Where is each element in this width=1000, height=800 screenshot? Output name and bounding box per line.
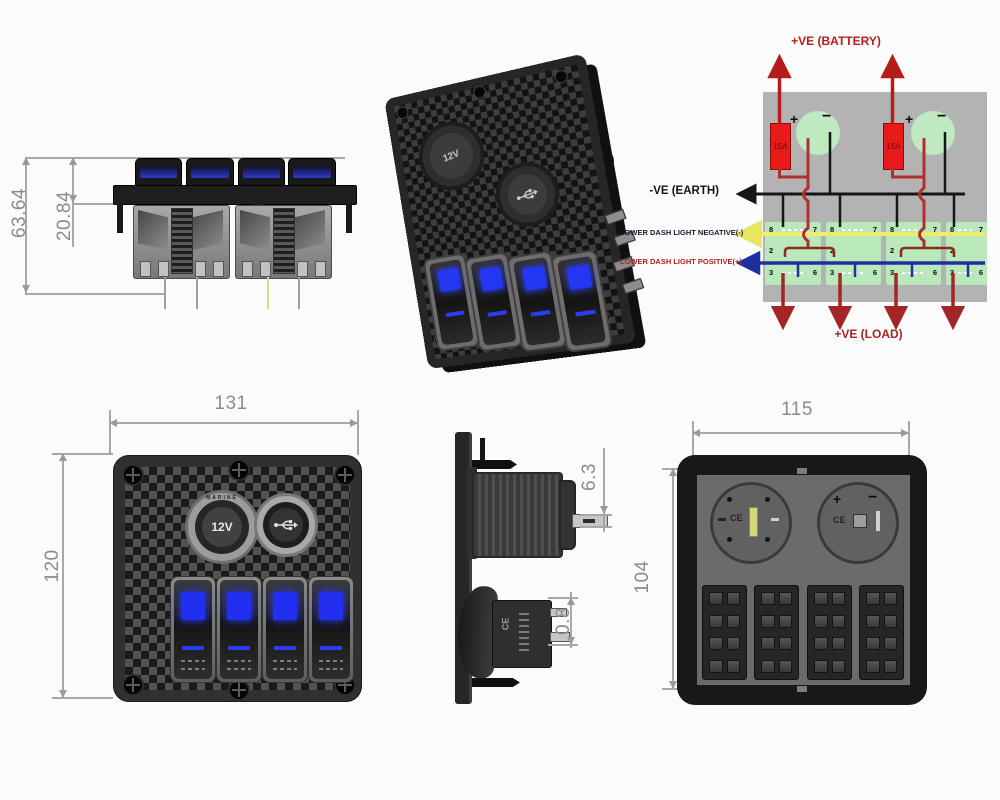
rocker-dash xyxy=(575,310,596,317)
terminal-bar xyxy=(876,511,880,531)
power-socket-face: 12V xyxy=(427,129,477,182)
dim-arrow xyxy=(69,157,77,165)
terminal-3-label: 3 xyxy=(830,269,834,277)
terminal-2-label: 2 xyxy=(830,247,834,255)
rocker-dash xyxy=(445,310,464,317)
switch-body-side xyxy=(235,205,332,279)
extension-line xyxy=(25,293,165,295)
technical-drawing-sheet: 63.64 20.84 xyxy=(0,0,1000,800)
extension-line xyxy=(580,526,612,528)
terminal-slot xyxy=(761,660,775,673)
mount-pin xyxy=(472,678,520,687)
terminal-slot xyxy=(761,637,775,650)
rocker-switch-front xyxy=(262,576,308,683)
terminal-slot xyxy=(779,615,793,628)
screw-icon xyxy=(122,464,144,486)
terminal-slot xyxy=(884,615,898,628)
terminal-slot xyxy=(832,660,846,673)
ce-mark-label: CE xyxy=(500,618,510,631)
notch-mark xyxy=(771,518,779,521)
terminal-slot xyxy=(832,615,846,628)
terminal-tab xyxy=(213,261,224,277)
terminal-slot xyxy=(709,660,723,673)
rocker-face xyxy=(557,256,606,346)
terminal-slot xyxy=(727,660,741,673)
dimension-line xyxy=(692,432,908,434)
terminal-dots xyxy=(958,272,972,274)
rocker-switch-front xyxy=(308,576,354,683)
rocker-marks xyxy=(319,660,343,662)
switch-rear xyxy=(702,585,747,680)
terminal-2-label: 2 xyxy=(769,247,773,255)
rocker-dash xyxy=(228,646,250,650)
plus-terminal-label: + xyxy=(790,112,798,126)
terminal-slot xyxy=(779,592,793,605)
mount-clip xyxy=(480,438,485,462)
dash-negative-label: LOWER DASH LIGHT NEGATIVE(-) xyxy=(620,228,740,237)
minus-terminal-label: − xyxy=(937,109,946,125)
mount-pin xyxy=(472,460,517,469)
terminal-8-label: 8 xyxy=(890,226,894,234)
ce-mark-label: CE xyxy=(833,515,846,525)
switch-rear xyxy=(807,585,852,680)
terminal-tab xyxy=(158,261,169,277)
terminal-slot xyxy=(727,637,741,650)
terminal-8-label: 8 xyxy=(769,226,773,234)
usb-socket-3d xyxy=(491,157,564,232)
terminal-tab xyxy=(140,261,151,277)
rocker-marks xyxy=(181,668,205,670)
dim-arrow xyxy=(59,690,67,698)
usb-socket-bezel xyxy=(263,502,309,548)
socket-voltage-label: 12V xyxy=(442,148,461,164)
terminal-7-label: 7 xyxy=(813,226,817,234)
power-socket-face: 12V xyxy=(202,507,242,547)
wire-pin xyxy=(164,277,166,309)
rocker-dash xyxy=(487,310,507,317)
terminal-6-label: 6 xyxy=(979,269,983,277)
wiring-socket-circle xyxy=(911,111,955,155)
earth-label: -VE (EARTH) xyxy=(635,185,719,197)
rocker-glow xyxy=(140,167,177,178)
dim-arrow xyxy=(567,597,575,605)
power-socket-front: MARINE 12V xyxy=(185,490,259,564)
terminal-slot xyxy=(761,592,775,605)
terminal-dots xyxy=(902,229,924,231)
rocker-cap-side xyxy=(238,158,285,187)
terminal-slot xyxy=(814,592,828,605)
rocker-dash xyxy=(320,646,342,650)
usb-socket-face xyxy=(269,508,303,542)
dim-arrow xyxy=(22,285,30,293)
dim-arrow xyxy=(59,453,67,461)
minus-terminal-label: − xyxy=(822,109,831,125)
usb-icon xyxy=(273,518,299,532)
terminal-3-label: 3 xyxy=(950,269,954,277)
rocker-light xyxy=(479,267,503,292)
switch-body-detail xyxy=(295,210,325,250)
fuse-rating-label: 15A xyxy=(773,142,788,151)
terminal-slot xyxy=(709,592,723,605)
terminal-6-label: 6 xyxy=(813,269,817,277)
dimension-line xyxy=(672,468,674,689)
panel-clip xyxy=(117,203,123,233)
dim-arrow xyxy=(350,419,358,427)
terminal-slot xyxy=(832,637,846,650)
terminal-slot xyxy=(866,615,880,628)
screw-icon xyxy=(228,459,250,481)
rocker-face xyxy=(220,580,258,679)
dim-arrow xyxy=(567,637,575,645)
terminal-slot xyxy=(814,615,828,628)
dim-label-width: 131 xyxy=(181,393,281,415)
socket-side-view: 6.3 CE 0.8 xyxy=(430,420,645,720)
switch-rear xyxy=(859,585,904,680)
rocker-marks xyxy=(227,668,251,670)
terminal-8-label: 8 xyxy=(830,226,834,234)
dim-label-terminal: 6.3 xyxy=(579,453,601,501)
rocker-dash xyxy=(182,646,204,650)
side-view: 63.64 20.84 xyxy=(0,140,375,310)
rear-inner-plate: CE + − CE xyxy=(697,475,910,685)
switch-body-detail xyxy=(193,210,223,250)
power-socket-rear: CE xyxy=(710,482,792,564)
battery-label: +VE (BATTERY) xyxy=(760,34,912,48)
screw-icon xyxy=(554,69,569,85)
terminal-dots xyxy=(782,272,804,274)
terminal-slot xyxy=(832,592,846,605)
switch-body-detail xyxy=(138,210,168,250)
bolt-dot xyxy=(765,537,770,542)
rocker-glow xyxy=(243,167,280,178)
minus-terminal-label: − xyxy=(868,490,877,506)
rocker-light xyxy=(438,267,462,292)
terminal-tab xyxy=(195,261,206,277)
switch-ribbed-core xyxy=(273,208,295,274)
rocker-light xyxy=(273,592,297,620)
terminal-2-label: 2 xyxy=(950,247,954,255)
terminal-slot xyxy=(814,660,828,673)
plus-terminal-label: + xyxy=(833,492,841,506)
terminal-square xyxy=(853,514,867,528)
cert-text-marks xyxy=(519,613,529,653)
terminal-slot xyxy=(761,615,775,628)
rocker-face xyxy=(266,580,304,679)
switch-body-side: CE xyxy=(492,600,552,668)
rocker-switch-front xyxy=(170,576,216,683)
ce-mark-label: CE xyxy=(730,513,743,523)
dimension-line xyxy=(109,422,357,424)
rocker-cap-side xyxy=(135,158,182,187)
dim-label-height: 120 xyxy=(42,542,64,590)
dim-arrow xyxy=(901,429,909,437)
panel-rear: CE + − CE xyxy=(677,455,927,705)
socket-voltage-label: 12V xyxy=(211,520,232,534)
fuse-15a: 15A xyxy=(883,123,904,170)
terminal-tab xyxy=(315,261,326,277)
terminal-slot xyxy=(884,660,898,673)
wiring-switch-block: 8 7 2 3 6 xyxy=(946,222,987,285)
bolt-dot xyxy=(727,537,732,542)
rocker-marks xyxy=(273,660,297,662)
screw-icon xyxy=(396,105,410,120)
terminal-6-label: 6 xyxy=(933,269,937,277)
extension-line xyxy=(357,410,359,455)
panel-front: MARINE 12V xyxy=(113,455,362,702)
switch-body-side xyxy=(133,205,230,279)
terminal-7-label: 7 xyxy=(873,226,877,234)
terminal-tab xyxy=(260,261,271,277)
extension-line xyxy=(109,410,111,455)
terminal-3-label: 3 xyxy=(769,269,773,277)
dim-label-height-upper: 20.84 xyxy=(54,188,76,244)
dim-label-height-total: 63.64 xyxy=(9,185,31,241)
usb-socket-rear: + − CE xyxy=(817,482,899,564)
mount-tab xyxy=(797,468,807,474)
usb-socket-face xyxy=(505,171,551,218)
terminal-slot xyxy=(779,637,793,650)
rocker-face xyxy=(312,580,350,679)
screw-icon xyxy=(472,85,486,100)
rocker-cap-side xyxy=(288,158,336,187)
terminal-dots xyxy=(842,229,864,231)
rocker-switch-front xyxy=(216,576,262,683)
terminal-slot xyxy=(866,592,880,605)
terminal-8-label: 8 xyxy=(950,226,954,234)
front-view: 131 120 MARINE 12V xyxy=(40,390,395,725)
switch-rear xyxy=(754,585,799,680)
terminal-tab xyxy=(297,261,308,277)
terminal-slot xyxy=(727,615,741,628)
rocker-glow xyxy=(191,167,229,178)
socket-cylinder xyxy=(472,472,563,558)
perspective-view: 12V xyxy=(388,52,628,387)
terminal-slot xyxy=(866,660,880,673)
dim-arrow xyxy=(669,468,677,476)
extension-line xyxy=(908,421,910,457)
terminal-3-label: 3 xyxy=(890,269,894,277)
dim-arrow xyxy=(109,419,117,427)
rocker-glow xyxy=(293,167,331,178)
switch-body-detail xyxy=(240,210,270,250)
load-label: +VE (LOAD) xyxy=(796,327,941,341)
dim-arrow xyxy=(692,429,700,437)
wiring-socket-circle xyxy=(796,111,840,155)
panel-3d: 12V xyxy=(384,53,636,369)
wire-pin-yellow xyxy=(267,277,269,309)
terminal-7-label: 7 xyxy=(933,226,937,234)
terminal-tab xyxy=(242,261,253,277)
rocker-dash xyxy=(274,646,296,650)
wiring-switch-block: 8 7 2 3 6 xyxy=(765,222,821,285)
mount-tab xyxy=(797,686,807,692)
bolt-dot xyxy=(727,497,732,502)
wire-pin xyxy=(298,277,300,309)
usb-icon xyxy=(514,184,541,205)
usb-socket-front xyxy=(254,493,318,557)
plus-terminal-label: + xyxy=(905,112,913,126)
terminal-slot xyxy=(814,637,828,650)
terminal-dots xyxy=(782,229,804,231)
blade-slot xyxy=(583,519,595,523)
rocker-light xyxy=(319,592,343,620)
terminal-dots xyxy=(842,272,864,274)
notch-mark xyxy=(718,518,726,521)
fuse-holder-bar xyxy=(749,507,758,537)
terminal-slot xyxy=(779,660,793,673)
rocker-light xyxy=(566,265,592,291)
terminal-slot xyxy=(866,637,880,650)
power-socket-bezel: 12V xyxy=(195,500,249,554)
panel-clip xyxy=(346,203,352,233)
fuse-rating-label: 15A xyxy=(886,142,901,151)
terminal-slot xyxy=(884,592,898,605)
dim-arrow xyxy=(22,157,30,165)
power-socket-3d: 12V xyxy=(414,115,490,196)
switch-ribbed-core xyxy=(171,208,193,274)
terminal-slot xyxy=(709,637,723,650)
terminal-slot xyxy=(727,592,741,605)
rocker-marks xyxy=(227,660,251,662)
dimension-line xyxy=(603,448,605,532)
screw-icon xyxy=(122,674,144,696)
rocker-marks xyxy=(319,668,343,670)
dash-positive-label: LOWER DASH LIGHT POSITIVE(+) xyxy=(620,257,738,266)
rocker-light xyxy=(227,592,251,620)
terminal-7-label: 7 xyxy=(979,226,983,234)
wiring-switch-block: 8 7 2 3 6 xyxy=(886,222,941,285)
bolt-dot xyxy=(765,497,770,502)
dimension-line xyxy=(62,453,64,698)
rocker-marks xyxy=(273,668,297,670)
wire-pin xyxy=(196,277,198,309)
wiring-switch-block: 8 7 2 3 6 xyxy=(826,222,881,285)
terminal-2-label: 2 xyxy=(890,247,894,255)
terminal-slot xyxy=(709,615,723,628)
extension-line xyxy=(580,514,612,516)
rocker-face xyxy=(174,580,212,679)
terminal-6-label: 6 xyxy=(873,269,877,277)
dim-label-height: 104 xyxy=(632,553,654,601)
dim-arrow xyxy=(669,681,677,689)
rocker-dash xyxy=(531,310,551,317)
screw-icon xyxy=(334,464,356,486)
rear-view: 115 104 CE xyxy=(630,395,975,735)
fuse-15a: 15A xyxy=(770,123,791,170)
wiring-diagram: 15A 15A + − + − 8 7 2 3 6 8 7 2 3 6 8 7 … xyxy=(620,20,1000,360)
panel-bar-side xyxy=(113,185,357,205)
rocker-light xyxy=(522,266,547,291)
terminal-dots xyxy=(958,229,972,231)
terminal-slot xyxy=(884,637,898,650)
dim-label-width: 115 xyxy=(747,399,847,421)
extension-line xyxy=(692,421,694,457)
rocker-marks xyxy=(181,660,205,662)
rocker-light xyxy=(181,592,205,620)
dim-arrow xyxy=(600,506,608,514)
terminal-dots xyxy=(902,272,924,274)
rocker-cap-side xyxy=(186,158,234,187)
